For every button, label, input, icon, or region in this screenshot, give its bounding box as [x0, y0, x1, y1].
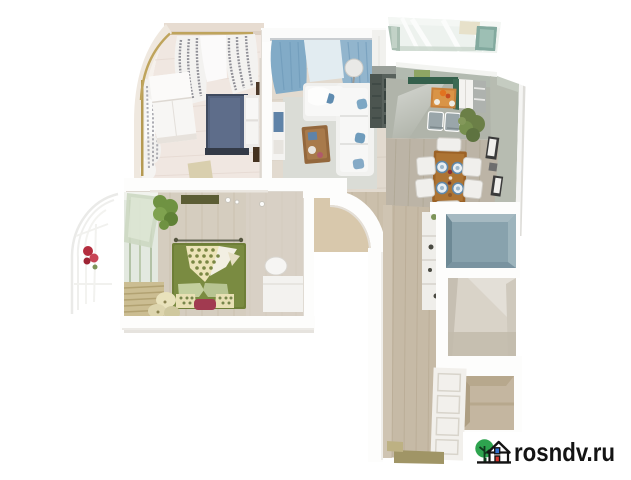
svg-text:rosndv.ru: rosndv.ru [514, 437, 615, 467]
